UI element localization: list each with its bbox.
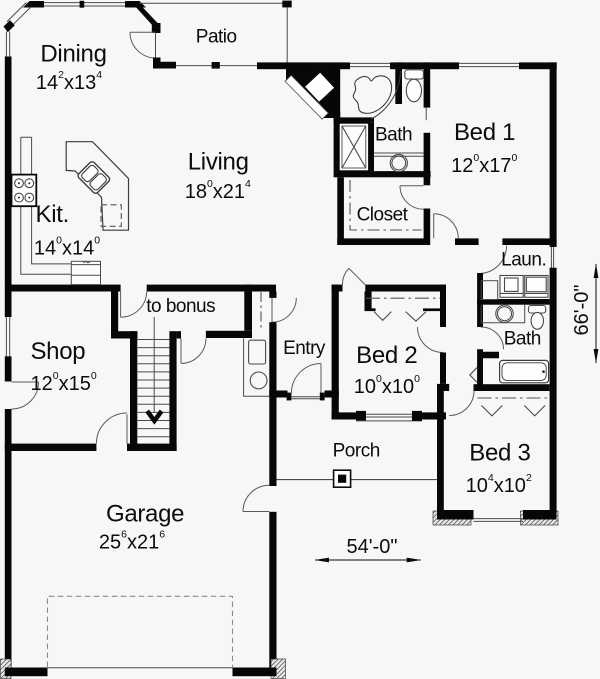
svg-text:Bed 3: Bed 3 bbox=[469, 440, 530, 467]
svg-text:Laun.: Laun. bbox=[501, 250, 546, 271]
svg-text:Bed 2: Bed 2 bbox=[356, 342, 417, 369]
svg-text:Garage: Garage bbox=[106, 500, 184, 527]
svg-text:Dining: Dining bbox=[40, 40, 106, 67]
svg-text:142x134: 142x134 bbox=[36, 69, 102, 94]
svg-text:Entry: Entry bbox=[283, 338, 326, 359]
svg-text:Bath: Bath bbox=[504, 328, 541, 349]
svg-text:Kit.: Kit. bbox=[36, 201, 69, 228]
svg-text:Closet: Closet bbox=[357, 205, 409, 226]
svg-text:to bonus: to bonus bbox=[146, 296, 215, 317]
svg-text:120x150: 120x150 bbox=[31, 370, 97, 395]
svg-text:Shop: Shop bbox=[30, 338, 85, 365]
svg-text:Living: Living bbox=[188, 148, 249, 175]
svg-text:Bath: Bath bbox=[375, 125, 412, 146]
svg-text:Porch: Porch bbox=[333, 441, 380, 462]
svg-text:54'-0": 54'-0" bbox=[347, 536, 398, 558]
svg-text:180x214: 180x214 bbox=[185, 178, 251, 203]
svg-text:104x102: 104x102 bbox=[466, 472, 532, 497]
svg-text:Bed 1: Bed 1 bbox=[454, 119, 515, 146]
svg-text:100x100: 100x100 bbox=[354, 373, 420, 398]
svg-text:256x216: 256x216 bbox=[99, 528, 165, 553]
svg-text:66'-0": 66'-0" bbox=[571, 285, 593, 336]
svg-text:120x170: 120x170 bbox=[451, 152, 517, 177]
svg-text:140x140: 140x140 bbox=[34, 235, 100, 260]
svg-text:Patio: Patio bbox=[196, 27, 237, 48]
